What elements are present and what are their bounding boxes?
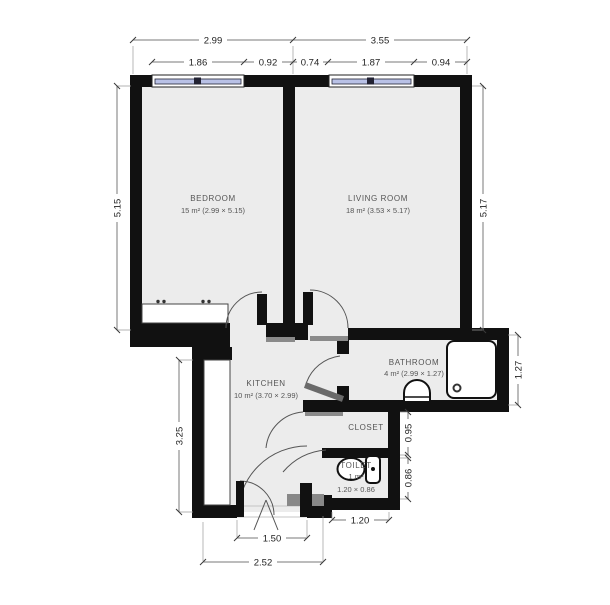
closet-label: CLOSET: [348, 423, 384, 432]
wall-kitchen-left: [192, 347, 204, 518]
dim-living-pier-right: 0.94: [432, 58, 451, 69]
dim-top-living-total: 3.55: [371, 36, 390, 47]
living-room-label: LIVING ROOM: [348, 194, 408, 203]
dim-bedroom-pier: 0.92: [259, 58, 278, 69]
dim-living-height: 5.17: [479, 199, 490, 218]
toilet-size: 1.20 × 0.86: [337, 485, 375, 494]
dim-kitchen-height: 3.25: [175, 427, 186, 446]
bathroom-area: 4 m² (2.99 × 1.27): [384, 369, 444, 378]
wall-kitchen-bottom: [192, 505, 237, 518]
dim-closet-height: 0.95: [404, 424, 415, 443]
bedroom-label: BEDROOM: [190, 194, 236, 203]
dim-bedroom-window: 1.86: [189, 58, 208, 69]
bedroom-window-icon: [152, 75, 244, 87]
floor-plan-svg: BEDROOM 15 m² (2.99 × 5.15) LIVING ROOM …: [0, 0, 610, 605]
shower-icon: [447, 341, 496, 398]
living-window-icon: [329, 75, 414, 87]
wall-divider: [283, 75, 295, 337]
toilet-area: 1 m²: [349, 472, 365, 481]
wall-bathroom-right: [497, 328, 509, 412]
dim-bedroom-height: 5.15: [113, 199, 124, 218]
floor-plan: BEDROOM 15 m² (2.99 × 5.15) LIVING ROOM …: [0, 0, 610, 605]
wall-toilet-bottom: [322, 498, 400, 510]
wall-bath-door-jamb: [337, 340, 349, 354]
wall-closet-bottom: [322, 448, 395, 458]
wall-left: [130, 75, 142, 347]
wall-bathroom-top: [348, 328, 509, 340]
dim-toilet-width: 1.20: [351, 516, 370, 527]
jamb-shade: [266, 337, 295, 342]
dim-top-bedroom-total: 2.99: [204, 36, 223, 47]
wall-right: [460, 75, 472, 340]
wall-living-bottom: [295, 323, 308, 340]
jamb-shade: [310, 336, 348, 341]
wall-bedroom-bottom: [266, 323, 295, 337]
wall-bedroom-bottom: [130, 323, 230, 347]
toilet-label: TOILET: [340, 461, 371, 470]
dim-living-window: 1.87: [362, 58, 381, 69]
jamb-shade: [305, 412, 343, 416]
kitchen-area: 10 m² (3.70 × 2.99): [234, 391, 298, 400]
room-fills: [136, 81, 503, 512]
dim-bathroom-height: 1.27: [514, 361, 525, 380]
dim-toilet-height: 0.86: [404, 469, 415, 488]
kitchen-counter-icon: [204, 360, 230, 505]
dim-kitchen-width: 2.52: [254, 558, 273, 569]
dim-entrance-width: 1.50: [263, 534, 282, 545]
living-room-area: 18 m² (3.53 × 5.17): [346, 206, 410, 215]
bathroom-label: BATHROOM: [389, 358, 439, 367]
dim-living-pier-left: 0.74: [301, 58, 320, 69]
bedroom-area: 15 m² (2.99 × 5.15): [181, 206, 245, 215]
kitchen-label: KITCHEN: [246, 379, 285, 388]
